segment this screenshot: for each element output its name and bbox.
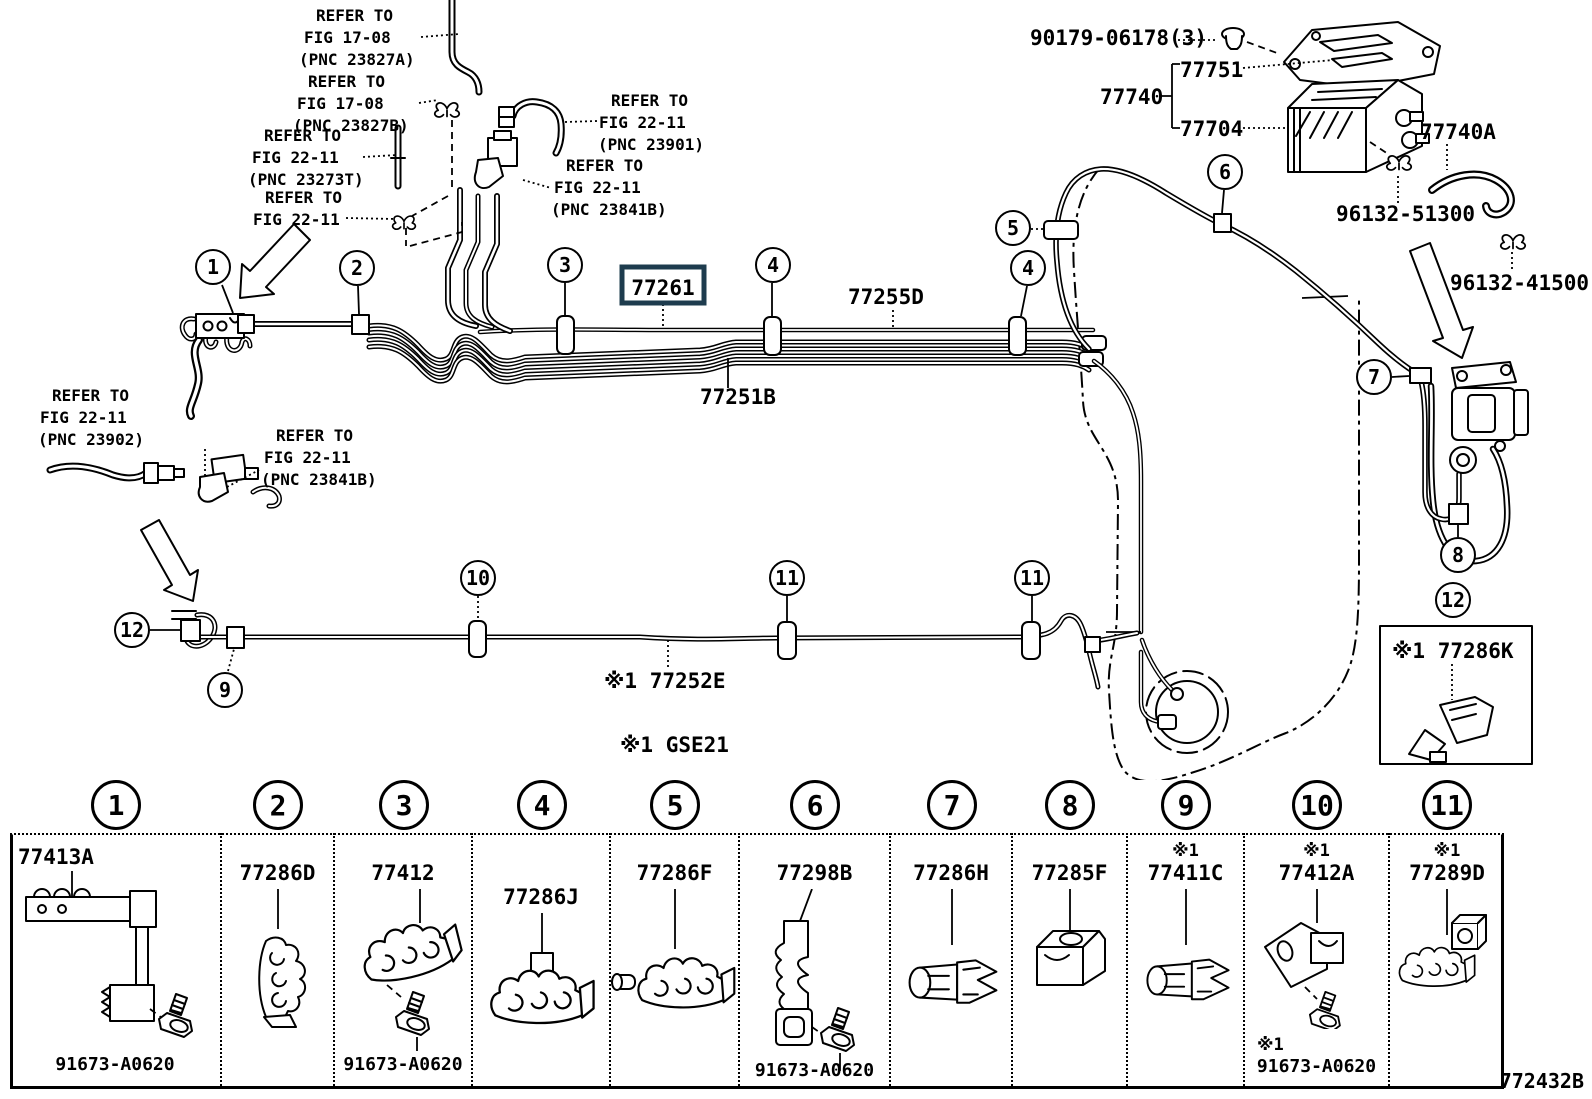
- refer-note-line: FIG 22-11: [40, 408, 127, 427]
- part-art-77298b: [740, 889, 891, 1089]
- legend-cell-3: 77412 91673-A0620: [335, 833, 473, 1089]
- refer-note-line: FIG 22-11: [599, 113, 686, 132]
- part-label-77740a[interactable]: 77740A: [1420, 120, 1496, 144]
- callout-7[interactable]: 7: [1357, 360, 1391, 394]
- legend-part-label[interactable]: 77411C: [1128, 861, 1243, 885]
- legend-cell-8: 77285F: [1013, 833, 1128, 1089]
- legend-part-label[interactable]: 77285F: [1013, 861, 1126, 885]
- part-label-77751[interactable]: 77751: [1180, 58, 1243, 82]
- legend-part-label[interactable]: 77286F: [611, 861, 738, 885]
- legend-part-label[interactable]: 77286H: [891, 861, 1011, 885]
- refer-note-line: FIG 22-11: [253, 210, 340, 229]
- refer-note-line: FIG 17-08: [304, 28, 391, 47]
- callout-number: 11: [775, 566, 799, 590]
- refer-note-line: REFER TO: [566, 156, 643, 175]
- legend-callout-number: 6: [807, 789, 824, 822]
- legend-part-label[interactable]: 77413A: [10, 845, 228, 869]
- clamp-4b: [1009, 317, 1026, 355]
- callout-11a[interactable]: 11: [770, 561, 804, 595]
- inset-box-77286k: ※1 77286K: [1380, 626, 1532, 764]
- legend-callout-8[interactable]: 8: [1045, 780, 1095, 830]
- part-art-77411c: [1128, 889, 1245, 1049]
- refer-note-line: FIG 17-08: [297, 94, 384, 113]
- shield-plate-part: [1284, 22, 1440, 88]
- refer-note-line: (PNC 23827A): [299, 50, 415, 69]
- callout-12b[interactable]: 12: [1436, 583, 1470, 617]
- part-art-77286h: [891, 889, 1013, 1049]
- callout-number: 4: [1022, 256, 1034, 280]
- callout-12a[interactable]: 12: [115, 613, 149, 647]
- callout-5[interactable]: 5: [996, 211, 1030, 245]
- part-label-96132-41500[interactable]: 96132-41500: [1450, 271, 1589, 295]
- refer-note-line: FIG 22-11: [554, 178, 641, 197]
- legend-bolt-variant-note: ※1: [1245, 1035, 1400, 1055]
- valve-23841b-top: [475, 131, 517, 188]
- callout-number: 7: [1368, 365, 1380, 389]
- callout-number: 1: [207, 255, 219, 279]
- figure-code: 772432B: [1500, 1069, 1584, 1093]
- part-label-77251b[interactable]: 77251B: [700, 385, 776, 409]
- refer-note-line: (PNC 23902): [38, 430, 144, 449]
- wheel-outline: [1146, 671, 1228, 753]
- legend-part-label[interactable]: 77286J: [473, 885, 609, 909]
- legend-callout-9[interactable]: 9: [1161, 780, 1211, 830]
- arrow-lower: [141, 520, 198, 601]
- refer-note-line: (PNC 23273T): [248, 170, 364, 189]
- arrow-rear: [1410, 243, 1473, 358]
- fuel-filter-bracket: [1450, 362, 1528, 473]
- clamp-10: [469, 621, 486, 657]
- part-art-77413a: [10, 871, 222, 1051]
- clamp-3: [557, 316, 574, 354]
- refer-note-line: (PNC 23841B): [551, 200, 667, 219]
- legend-variant-note: ※1: [1128, 841, 1243, 861]
- legend-callout-3[interactable]: 3: [379, 780, 429, 830]
- legend-callout-6[interactable]: 6: [790, 780, 840, 830]
- legend-cell-9: ※1 77411C: [1128, 833, 1245, 1089]
- parts-diagram-page: REFER TO FIG 17-08 (PNC 23827A) REFER TO…: [0, 0, 1592, 1099]
- callout-number: 10: [466, 566, 490, 590]
- callout-number: 8: [1452, 543, 1464, 567]
- part-label-77704[interactable]: 77704: [1180, 117, 1243, 141]
- hose-23902: [50, 463, 184, 483]
- legend-callout-number: 8: [1062, 789, 1079, 822]
- clamp-11a: [778, 622, 796, 659]
- part-art-77289d: [1390, 889, 1504, 1049]
- tube-branch-to-canister: [1056, 169, 1419, 375]
- legend-cell-4: 77286J: [473, 833, 611, 1089]
- legend-cell-7: 77286H: [891, 833, 1013, 1089]
- legend-callout-number: 10: [1300, 789, 1334, 822]
- highlighted-part-77261[interactable]: 77261: [622, 267, 704, 303]
- part-art-77285f: [1013, 889, 1128, 1049]
- callout-number: 4: [767, 253, 779, 277]
- callout-number: 12: [1441, 588, 1465, 612]
- clamp-icon-2211: [393, 216, 416, 229]
- part-label-96132-51300[interactable]: 96132-51300: [1336, 202, 1475, 226]
- legend-bolt-label[interactable]: 91673-A0620: [1245, 1056, 1388, 1077]
- clamp-11b: [1022, 622, 1040, 659]
- legend-callout-11[interactable]: 11: [1422, 780, 1472, 830]
- part-art-77412: [335, 889, 473, 1059]
- part-art-77286d: [222, 889, 335, 1079]
- legend-variant-note: ※1: [1390, 841, 1504, 861]
- part-label-77740[interactable]: 77740: [1100, 85, 1163, 109]
- part-art-77286j: [473, 913, 611, 1073]
- legend-part-label[interactable]: 77412A: [1245, 861, 1388, 885]
- clamp-12: [181, 620, 200, 641]
- refer-note-line: REFER TO: [276, 426, 353, 445]
- part-label-77255d[interactable]: 77255D: [848, 285, 924, 309]
- legend-bolt-label[interactable]: 91673-A0620: [10, 1054, 220, 1075]
- part-label-77286k[interactable]: ※1 77286K: [1392, 639, 1514, 663]
- refer-note-line: FIG 22-11: [252, 148, 339, 167]
- legend-callout-1[interactable]: 1: [91, 780, 141, 830]
- legend-callout-7[interactable]: 7: [927, 780, 977, 830]
- callout-11b[interactable]: 11: [1015, 561, 1049, 595]
- refer-note-line: REFER TO: [264, 126, 341, 145]
- callout-number: 3: [559, 253, 571, 277]
- clamp-5: [1044, 221, 1078, 239]
- fuel-tube-bundle: [254, 324, 1106, 382]
- refer-note-line: (PNC 23901): [598, 135, 704, 154]
- legend-cell-1: 77413A 91673-A0620: [10, 833, 222, 1089]
- clamp-icon-23827b: [435, 103, 459, 117]
- legend-callout-number: 4: [534, 789, 551, 822]
- clamp-6: [1214, 214, 1231, 232]
- tube-clamps: [181, 214, 1468, 659]
- callout-3[interactable]: 3: [548, 248, 582, 282]
- callout-6[interactable]: 6: [1208, 155, 1242, 189]
- clamp-1: [238, 315, 254, 333]
- callout-4b[interactable]: 4: [1011, 251, 1045, 285]
- legend-cell-2: 77286D: [222, 833, 335, 1089]
- clamp-7: [1410, 368, 1431, 383]
- clamp-j: [1085, 637, 1100, 652]
- legend-callout-2[interactable]: 2: [253, 780, 303, 830]
- legend-callout-number: 2: [270, 789, 287, 822]
- callout-number: 12: [120, 618, 144, 642]
- refer-note-line: REFER TO: [316, 6, 393, 25]
- clamp-9: [227, 627, 244, 648]
- legend-callout-10[interactable]: 10: [1292, 780, 1342, 830]
- callout-2[interactable]: 2: [340, 251, 374, 285]
- callout-number: 6: [1219, 160, 1231, 184]
- refer-note-line: REFER TO: [611, 91, 688, 110]
- clamp-51300-icon: [1387, 156, 1411, 170]
- legend-part-label[interactable]: 77289D: [1390, 861, 1504, 885]
- refer-notes: REFER TO FIG 17-08 (PNC 23827A) REFER TO…: [38, 6, 704, 489]
- legend-callout-number: 11: [1430, 789, 1464, 822]
- legend-callout-5[interactable]: 5: [650, 780, 700, 830]
- legend-bolt-label[interactable]: 91673-A0620: [335, 1054, 471, 1075]
- legend-callout-number: 5: [667, 789, 684, 822]
- clamp-41500-icon: [1501, 235, 1525, 249]
- callout-number: 5: [1007, 216, 1019, 240]
- legend-part-label[interactable]: 77286D: [222, 861, 333, 885]
- vehicle-underbody-outline: [1073, 168, 1359, 780]
- callout-4a[interactable]: 4: [756, 248, 790, 282]
- legend-callout-number: 1: [108, 789, 125, 822]
- callout-number: 11: [1020, 566, 1044, 590]
- refer-note-line: REFER TO: [265, 188, 342, 207]
- model-note-gse21: ※1 GSE21: [620, 733, 729, 757]
- legend-bolt-label[interactable]: 91673-A0620: [740, 1060, 889, 1081]
- clamp-8: [1449, 504, 1468, 524]
- legend-cell-10: ※1 77412A ※1 91673-A0620: [1245, 833, 1390, 1089]
- direction-arrows: [141, 224, 1473, 601]
- legend-cell-11: ※1 77289D: [1390, 833, 1504, 1089]
- arrow-front: [240, 224, 310, 298]
- top-center-tubes: [391, 0, 561, 331]
- callout-number: 2: [351, 256, 363, 280]
- legend-part-label[interactable]: 77412: [335, 861, 471, 885]
- legend-cell-6: 77298B 91673-A0620: [740, 833, 891, 1089]
- part-art-77412a: [1245, 889, 1390, 1029]
- part-label-77252e[interactable]: ※1 77252E: [604, 669, 726, 693]
- refer-note-line: REFER TO: [308, 72, 385, 91]
- refer-note-line: FIG 22-11: [264, 448, 351, 467]
- legend-cell-5: 77286F: [611, 833, 740, 1089]
- part-label-grommet[interactable]: 90179-06178(3): [1030, 26, 1207, 50]
- callout-9[interactable]: 9: [208, 673, 242, 707]
- callout-10[interactable]: 10: [461, 561, 495, 595]
- legend-callout-4[interactable]: 4: [517, 780, 567, 830]
- part-art-77286f: [611, 889, 740, 1059]
- refer-note-line: REFER TO: [52, 386, 129, 405]
- callout-1[interactable]: 1: [196, 250, 230, 284]
- clamp-2: [352, 315, 369, 334]
- legend-variant-note: ※1: [1245, 841, 1388, 861]
- legend-part-label[interactable]: 77298B: [740, 861, 889, 885]
- callout-8[interactable]: 8: [1441, 538, 1475, 572]
- legend-callout-number: 7: [944, 789, 961, 822]
- fuel-tank-tube-diagram: REFER TO FIG 17-08 (PNC 23827A) REFER TO…: [0, 0, 1592, 780]
- legend-callout-number: 9: [1178, 789, 1195, 822]
- clamp-4a: [764, 317, 781, 355]
- part-label-77261[interactable]: 77261: [631, 276, 694, 300]
- legend-callout-number: 3: [396, 789, 413, 822]
- refer-note-line: (PNC 23841B): [261, 470, 377, 489]
- callout-number: 9: [219, 678, 231, 702]
